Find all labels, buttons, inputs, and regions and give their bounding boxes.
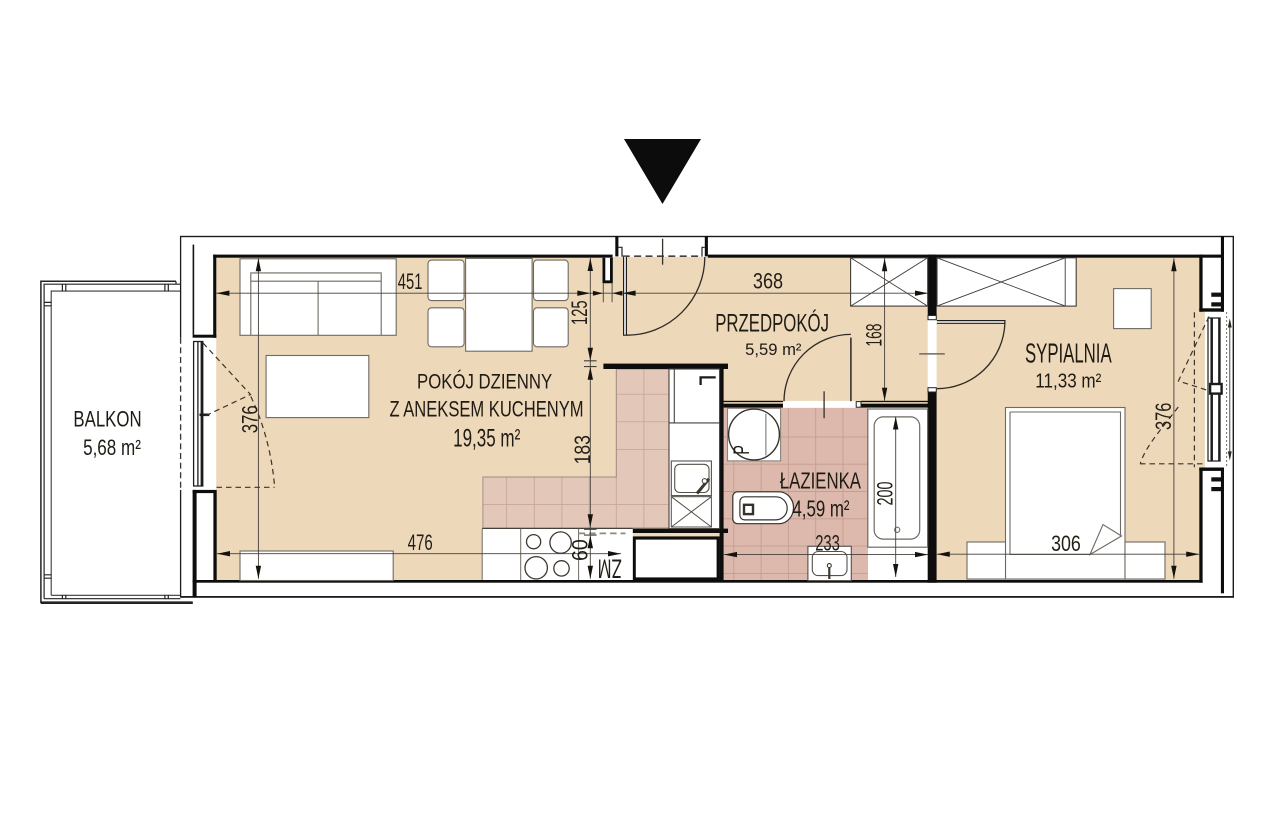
svg-text:125: 125	[567, 300, 592, 325]
svg-text:376: 376	[1151, 403, 1176, 430]
svg-text:ZM: ZM	[598, 553, 622, 583]
svg-text:19,35 m²: 19,35 m²	[453, 424, 520, 452]
svg-text:11,33 m²: 11,33 m²	[1035, 370, 1101, 393]
svg-text:P: P	[729, 445, 754, 455]
svg-text:PRZEDPOKÓJ: PRZEDPOKÓJ	[715, 308, 829, 337]
svg-text:306: 306	[1051, 531, 1081, 556]
svg-text:451: 451	[398, 269, 423, 294]
svg-text:476: 476	[408, 530, 433, 555]
svg-text:5,59 m²: 5,59 m²	[745, 340, 802, 359]
svg-text:376: 376	[238, 405, 263, 433]
svg-text:POKÓJ DZIENNY: POKÓJ DZIENNY	[417, 368, 552, 393]
svg-text:SYPIALNIA: SYPIALNIA	[1025, 338, 1112, 369]
svg-text:BALKON: BALKON	[73, 406, 141, 431]
svg-text:5,68 m²: 5,68 m²	[83, 435, 141, 460]
svg-text:233: 233	[815, 531, 840, 556]
svg-text:168: 168	[861, 324, 886, 347]
svg-text:368: 368	[753, 269, 783, 294]
svg-text:183: 183	[570, 435, 595, 464]
svg-text:Z ANEKSEM KUCHENYM: Z ANEKSEM KUCHENYM	[389, 397, 583, 422]
svg-text:ŁAZIENKA: ŁAZIENKA	[780, 467, 862, 493]
svg-text:60: 60	[568, 539, 593, 561]
svg-text:4,59 m²: 4,59 m²	[792, 495, 849, 521]
svg-text:200: 200	[873, 482, 898, 506]
